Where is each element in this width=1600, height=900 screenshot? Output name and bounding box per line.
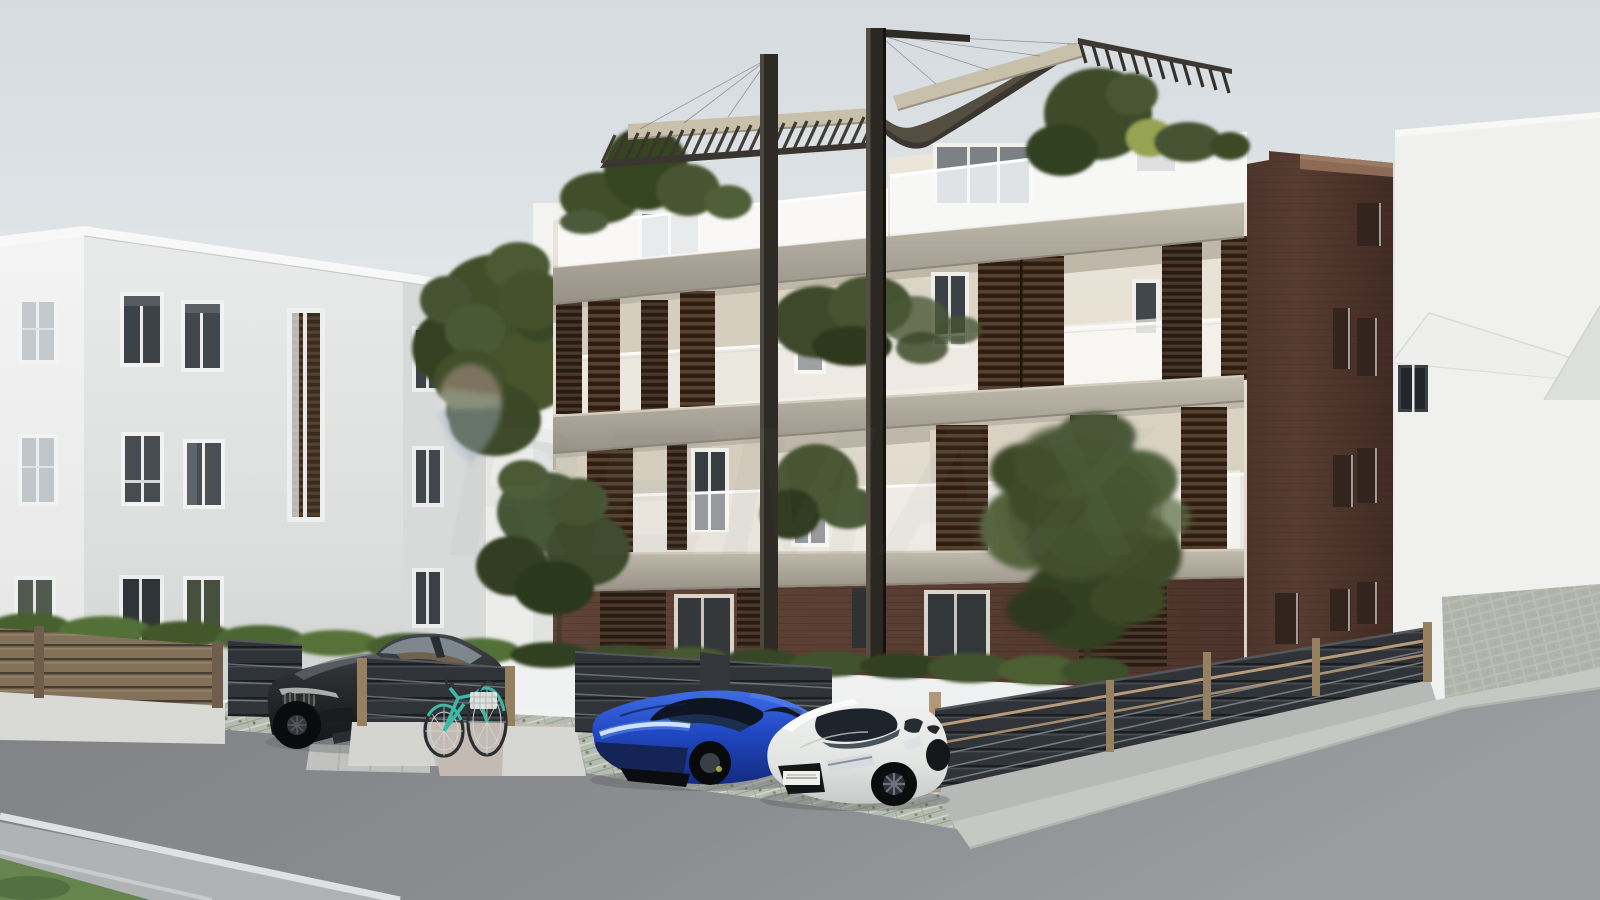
- svg-text:REMAX: REMAX: [446, 389, 1156, 595]
